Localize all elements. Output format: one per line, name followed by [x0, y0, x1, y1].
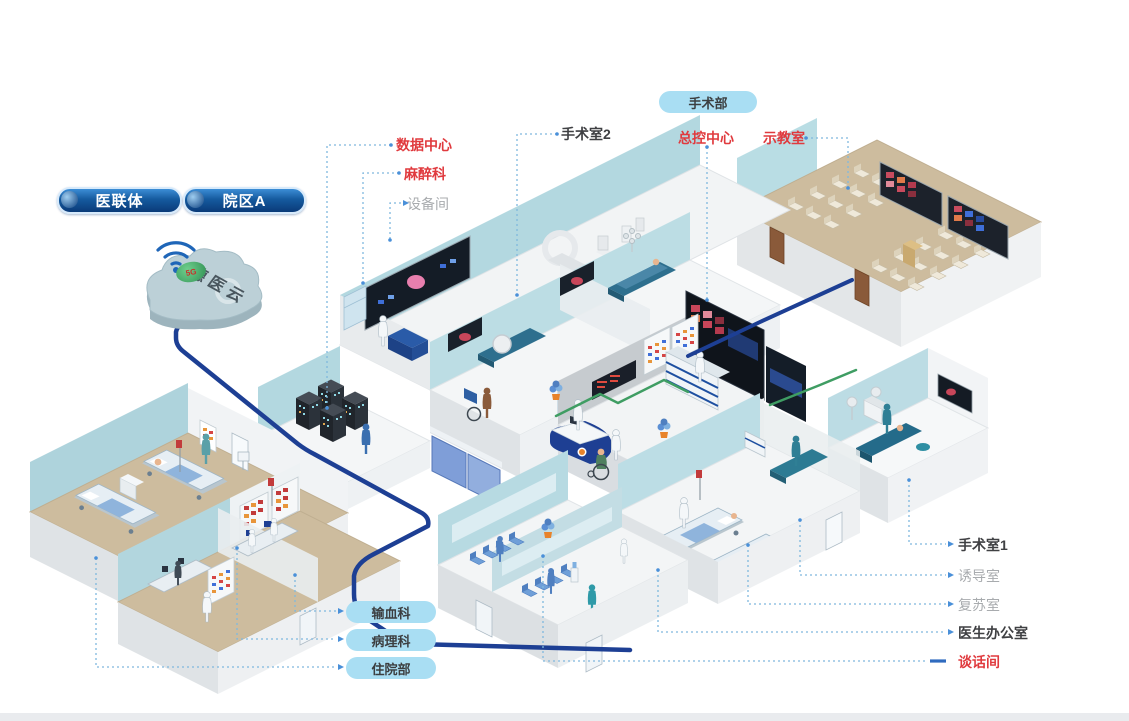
patient-head [731, 513, 737, 519]
callout-data-center: 数据中心 [396, 138, 452, 152]
pill-campus-a: 院区A [183, 187, 306, 214]
callout-anesthesiology: 麻醉科 [404, 167, 446, 181]
patient-head [155, 459, 162, 466]
callout-doctor-office: 医生办公室 [958, 626, 1028, 640]
pill-medical-consortium: 医联体 [57, 187, 182, 214]
pill-surgery-department: 手术部 [659, 91, 757, 113]
hospital-isometric-diagram: OR3 OR2 [0, 0, 1129, 721]
patient-head [897, 425, 903, 431]
pill-pathology: 病理科 [346, 629, 436, 651]
stool [916, 443, 930, 451]
callout-demo-classroom: 示教室 [763, 131, 805, 145]
classroom-door [770, 227, 784, 264]
callout-recovery-room: 复苏室 [958, 598, 1000, 612]
pill-inpatient: 住院部 [346, 657, 436, 679]
bottom-strip [0, 713, 1129, 721]
patient-head [653, 259, 659, 265]
callout-talk-room: 谈话间 [958, 655, 1000, 669]
callout-operating-room-2: 手术室2 [561, 127, 611, 141]
callout-master-control: 总控中心 [678, 131, 734, 145]
callout-equipment-room: 设备间 [407, 197, 449, 211]
callout-operating-room-1: 手术室1 [958, 538, 1008, 552]
callout-induction-room: 诱导室 [958, 569, 1000, 583]
classroom-door [855, 269, 869, 306]
pill-blood-transfusion: 输血科 [346, 601, 436, 623]
